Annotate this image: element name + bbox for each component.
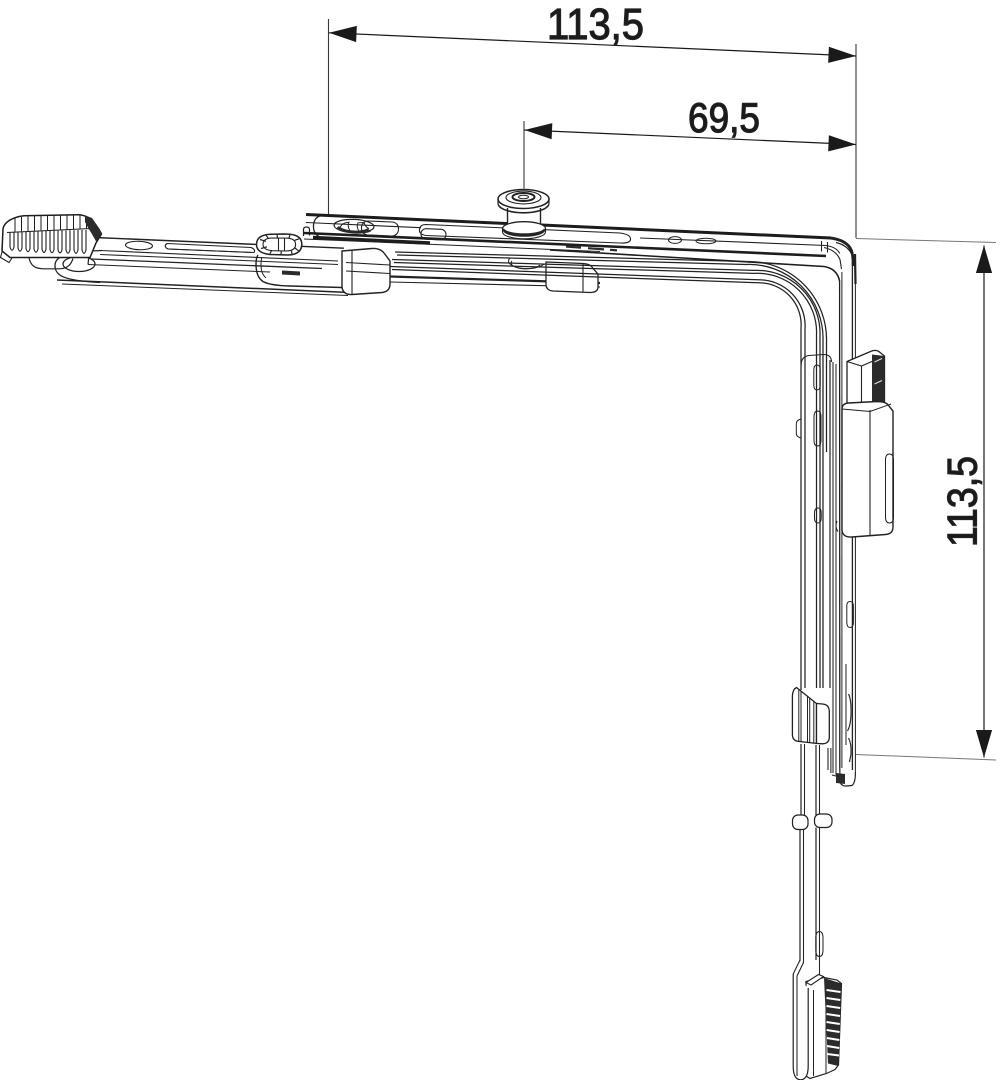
svg-text:113,5: 113,5: [939, 456, 986, 547]
svg-text:113,5: 113,5: [547, 0, 644, 49]
svg-text:69,5: 69,5: [688, 94, 760, 141]
